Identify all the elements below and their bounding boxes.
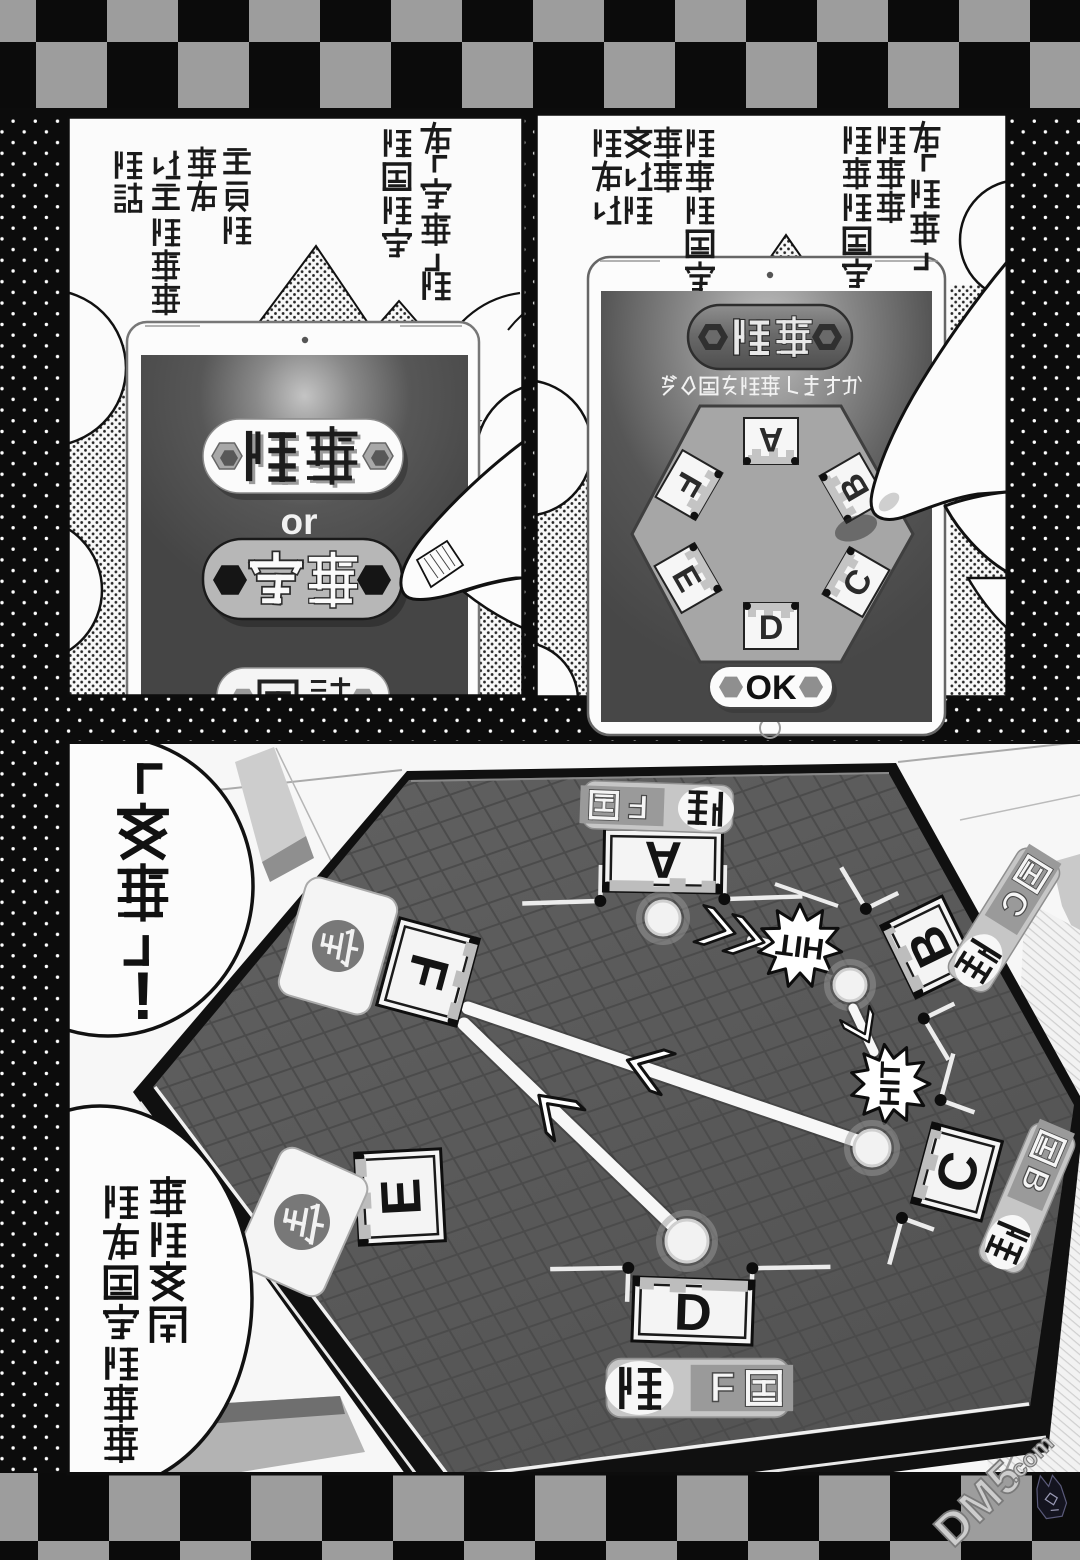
- svg-text:A: A: [644, 830, 683, 889]
- svg-text:F: F: [710, 1363, 735, 1410]
- svg-text:or: or: [281, 501, 318, 542]
- svg-text:A: A: [759, 420, 784, 458]
- svg-text:D: D: [759, 609, 784, 647]
- svg-text:E: E: [368, 1177, 433, 1218]
- svg-text:!: !: [132, 958, 155, 1034]
- svg-text:D: D: [673, 1283, 713, 1342]
- svg-text:F: F: [627, 787, 649, 826]
- svg-text:HIT: HIT: [874, 1061, 907, 1107]
- svg-text:HIT: HIT: [774, 927, 826, 966]
- svg-text:OK: OK: [746, 669, 797, 707]
